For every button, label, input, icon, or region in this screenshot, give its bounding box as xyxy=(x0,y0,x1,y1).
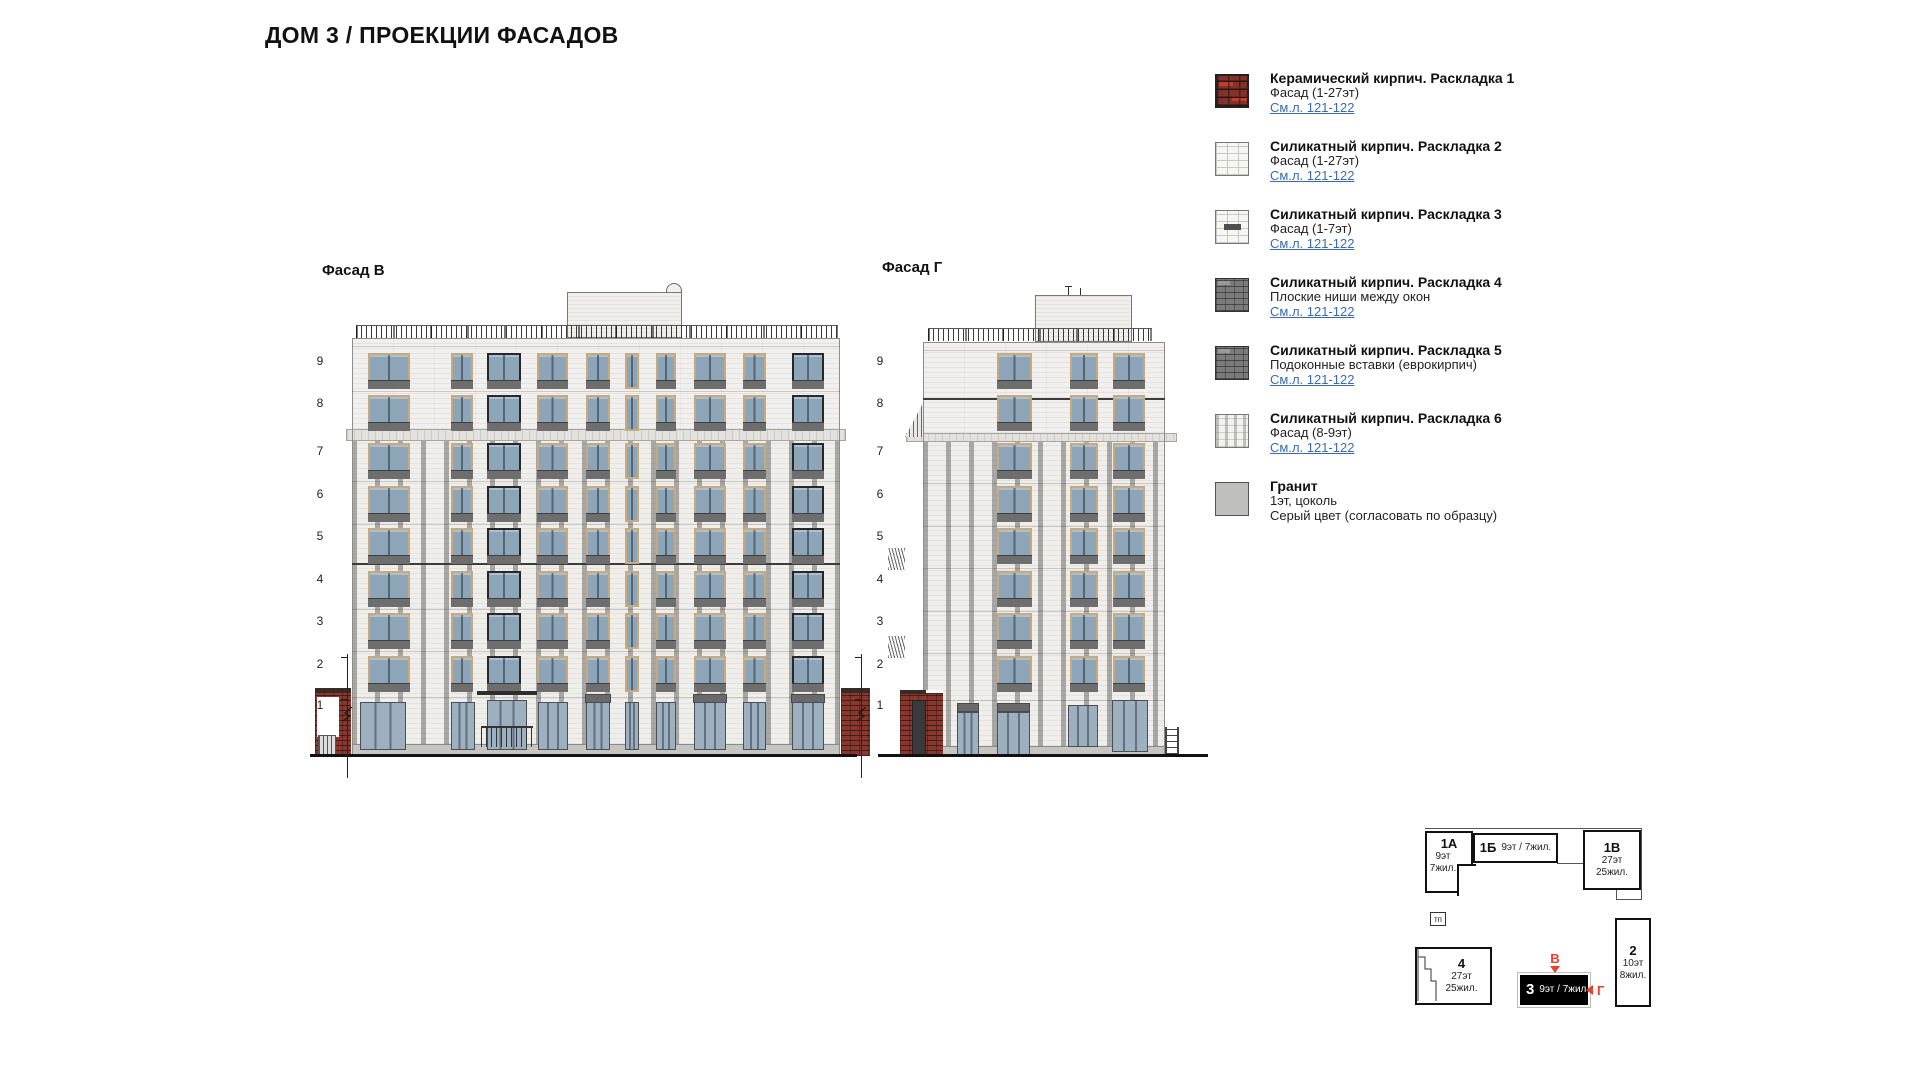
window xyxy=(537,353,568,389)
window-spandrel xyxy=(694,380,726,389)
window-spandrel xyxy=(743,380,766,389)
window xyxy=(625,443,639,479)
window-spandrel xyxy=(997,683,1032,692)
floor-label: 2 xyxy=(870,657,890,671)
floor-line xyxy=(352,609,840,610)
window-spandrel xyxy=(656,555,676,564)
ground-line xyxy=(310,754,857,757)
window-spandrel xyxy=(586,470,610,479)
vent-grate xyxy=(318,735,336,755)
floor-label: 8 xyxy=(310,396,330,410)
window-spandrel xyxy=(368,598,410,607)
legend-item-title: Силикатный кирпич. Раскладка 5 xyxy=(1270,342,1502,358)
window-spandrel xyxy=(451,555,473,564)
window-spandrel xyxy=(997,555,1032,564)
window-spandrel xyxy=(656,598,676,607)
storefront-header xyxy=(957,703,979,712)
window xyxy=(625,656,639,692)
window xyxy=(451,395,473,431)
datum-tick xyxy=(341,699,348,700)
storefront-window xyxy=(451,702,475,750)
window-spandrel xyxy=(792,598,824,607)
window-spandrel xyxy=(451,640,473,649)
window xyxy=(451,656,473,692)
window xyxy=(625,613,639,649)
window-spandrel xyxy=(997,640,1032,649)
legend-item-line: Подоконные вставки (еврокирпич) xyxy=(1270,357,1477,372)
legend-item-title: Силикатный кирпич. Раскладка 6 xyxy=(1270,410,1502,426)
window-spandrel xyxy=(1070,513,1098,522)
window-spandrel xyxy=(656,422,676,431)
window-spandrel xyxy=(997,380,1032,389)
silicate-brick-swatch xyxy=(1215,142,1249,176)
window-spandrel xyxy=(656,513,676,522)
window-spandrel xyxy=(487,598,521,607)
storefront-window xyxy=(538,702,568,750)
window-spandrel xyxy=(537,422,568,431)
legend-item-line: Плоские ниши между окон xyxy=(1270,289,1430,304)
block-1v-line1: 27эт xyxy=(1602,855,1623,867)
block-1a-line1: 9эт xyxy=(1427,851,1459,863)
break-mark xyxy=(342,706,354,722)
window xyxy=(656,395,676,431)
view-marker-g-arrow-icon xyxy=(1586,985,1593,995)
siteplan-block-4: 4 27эт 25жил. xyxy=(1415,947,1492,1005)
facade-g-label: Фасад Г xyxy=(882,259,942,276)
facade-b-label: Фасад В xyxy=(322,262,385,279)
window-spandrel xyxy=(451,598,473,607)
window-spandrel xyxy=(368,640,410,649)
block-4-steps-icon xyxy=(1417,949,1439,1002)
view-marker-g-label: Г xyxy=(1597,983,1604,998)
window-spandrel xyxy=(586,683,610,692)
block-1b-sub: 9эт / 7жил. xyxy=(1501,842,1551,854)
window xyxy=(997,395,1032,431)
window-spandrel xyxy=(792,380,824,389)
window-spandrel xyxy=(1070,555,1098,564)
floor-line xyxy=(923,350,1165,351)
floor-label: 3 xyxy=(870,614,890,628)
side-ramp xyxy=(905,403,923,437)
window xyxy=(625,528,639,564)
block-1v-line2: 25жил. xyxy=(1596,867,1628,879)
window-spandrel xyxy=(368,683,410,692)
window-spandrel xyxy=(656,470,676,479)
window xyxy=(997,353,1032,389)
window-spandrel xyxy=(586,422,610,431)
window-spandrel xyxy=(792,470,824,479)
window-spandrel xyxy=(487,555,521,564)
floor-line xyxy=(352,524,840,525)
floor-label: 2 xyxy=(310,657,330,671)
window-spandrel xyxy=(368,513,410,522)
window-spandrel xyxy=(1070,683,1098,692)
window xyxy=(743,443,766,479)
window xyxy=(997,528,1032,564)
dark-brick-swatch xyxy=(1215,346,1249,380)
window xyxy=(586,613,610,649)
block-2-id: 2 xyxy=(1629,944,1636,958)
window xyxy=(368,528,410,564)
siteplan-block-1b: 1Б 9эт / 7жил. xyxy=(1473,833,1558,863)
floor-label: 5 xyxy=(310,529,330,543)
window-spandrel xyxy=(537,683,568,692)
floor-line xyxy=(352,391,840,392)
floor-label: 7 xyxy=(870,444,890,458)
window xyxy=(792,528,824,564)
window xyxy=(792,486,824,522)
legend-item-line: 1эт, цоколь xyxy=(1270,493,1337,508)
window-spandrel xyxy=(1113,640,1145,649)
window-spandrel xyxy=(743,470,766,479)
window xyxy=(451,353,473,389)
window xyxy=(1070,353,1098,389)
legend-item-title: Гранит xyxy=(1270,478,1318,494)
window xyxy=(743,528,766,564)
window-spandrel xyxy=(656,380,676,389)
window-spandrel xyxy=(1113,683,1145,692)
wall-ladder xyxy=(1165,727,1179,754)
window-spandrel xyxy=(537,598,568,607)
window xyxy=(487,571,521,607)
window-spandrel xyxy=(1113,555,1145,564)
window xyxy=(694,528,726,564)
dark-brick-swatch xyxy=(1215,278,1249,312)
window xyxy=(451,571,473,607)
floor-label: 6 xyxy=(870,487,890,501)
legend-item-title: Силикатный кирпич. Раскладка 3 xyxy=(1270,206,1502,222)
break-mark xyxy=(856,706,868,722)
legend-item-line: Фасад (8-9эт) xyxy=(1270,425,1352,440)
window xyxy=(487,613,521,649)
window xyxy=(694,486,726,522)
window xyxy=(487,528,521,564)
legend-item-link[interactable]: См.л. 121-122 xyxy=(1270,100,1354,115)
window xyxy=(694,571,726,607)
roof-railing xyxy=(356,325,838,338)
view-marker-v-label: В xyxy=(1544,951,1566,966)
datum-tick xyxy=(855,699,862,700)
legend-item-link[interactable]: См.л. 121-122 xyxy=(1270,372,1354,387)
block-1b-id: 1Б xyxy=(1480,841,1497,855)
window-spandrel xyxy=(743,513,766,522)
legend-item-title: Керамический кирпич. Раскладка 1 xyxy=(1270,70,1514,86)
window xyxy=(451,613,473,649)
siteplan-block-tp: тп xyxy=(1430,912,1446,926)
window xyxy=(586,656,610,692)
granite-swatch xyxy=(1215,482,1249,516)
floor-line xyxy=(352,481,840,482)
ceramic-brick-swatch xyxy=(1215,74,1249,108)
window xyxy=(656,528,676,564)
legend-item-title: Силикатный кирпич. Раскладка 4 xyxy=(1270,274,1502,290)
window xyxy=(368,353,410,389)
window-spandrel xyxy=(1113,422,1145,431)
window xyxy=(625,395,639,431)
window xyxy=(743,656,766,692)
legend-item-link[interactable]: См.л. 121-122 xyxy=(1270,304,1354,319)
window xyxy=(368,571,410,607)
window xyxy=(487,353,521,389)
window-spandrel xyxy=(451,422,473,431)
block-1v-id: 1В xyxy=(1604,841,1621,855)
window-spandrel xyxy=(537,555,568,564)
siteplan-block-1v: 1В 27эт 25жил. xyxy=(1583,830,1641,890)
window xyxy=(1113,486,1145,522)
window xyxy=(537,528,568,564)
floor-label: 8 xyxy=(870,396,890,410)
window xyxy=(487,486,521,522)
storefront-window xyxy=(792,702,824,750)
block-1a-notch xyxy=(1457,864,1476,896)
window-spandrel xyxy=(997,598,1032,607)
entrance-fence xyxy=(481,726,533,747)
sketch-mark xyxy=(888,548,905,570)
window-spandrel xyxy=(451,683,473,692)
window-spandrel xyxy=(656,683,676,692)
window-spandrel xyxy=(537,380,568,389)
window xyxy=(1113,656,1145,692)
window xyxy=(451,443,473,479)
window xyxy=(537,486,568,522)
window xyxy=(656,353,676,389)
window-spandrel xyxy=(487,640,521,649)
window xyxy=(1113,443,1145,479)
brick-door xyxy=(912,700,926,756)
window-spandrel xyxy=(997,422,1032,431)
legend-item-line: Фасад (1-27эт) xyxy=(1270,153,1359,168)
floor-line xyxy=(352,346,840,347)
window-spandrel xyxy=(997,470,1032,479)
window-spandrel xyxy=(743,598,766,607)
drawing-sheet: ДОМ 3 / ПРОЕКЦИИ ФАСАДОВ Фасад В Фасад Г… xyxy=(0,0,1920,1080)
block-2-line2: 8жил. xyxy=(1620,970,1646,982)
floor-label: 3 xyxy=(310,614,330,628)
window xyxy=(792,395,824,431)
window-spandrel xyxy=(792,683,824,692)
window-spandrel xyxy=(537,470,568,479)
floor-label: 9 xyxy=(870,354,890,368)
window xyxy=(368,395,410,431)
floor-line xyxy=(923,653,1165,654)
legend-item-link[interactable]: См.л. 121-122 xyxy=(1270,168,1354,183)
window xyxy=(487,443,521,479)
window-spandrel xyxy=(451,513,473,522)
window-spandrel xyxy=(487,380,521,389)
window xyxy=(743,353,766,389)
window-spandrel xyxy=(694,422,726,431)
window xyxy=(368,486,410,522)
window-spandrel xyxy=(743,683,766,692)
window xyxy=(694,443,726,479)
window xyxy=(656,656,676,692)
datum-tick xyxy=(855,657,862,658)
sketch-mark xyxy=(888,636,905,658)
window-spandrel xyxy=(368,555,410,564)
window xyxy=(537,613,568,649)
storefront-window xyxy=(586,702,610,750)
storefront-window xyxy=(656,702,676,750)
window xyxy=(586,486,610,522)
window-spandrel xyxy=(451,470,473,479)
window-spandrel xyxy=(487,422,521,431)
pier-cap xyxy=(315,688,351,693)
window xyxy=(1070,656,1098,692)
window xyxy=(537,395,568,431)
storefront-window xyxy=(743,702,766,750)
block-1a-line2: 7жил. xyxy=(1427,863,1459,875)
roof-railing xyxy=(928,328,1152,341)
siteplan-block-3: 3 9эт / 7жил xyxy=(1520,975,1588,1005)
legend-item-note: Серый цвет (согласовать по образцу) xyxy=(1270,508,1497,523)
window-spandrel xyxy=(694,683,726,692)
window-spandrel xyxy=(586,640,610,649)
window-spandrel xyxy=(1070,470,1098,479)
window-spandrel xyxy=(792,555,824,564)
window xyxy=(537,571,568,607)
block-4-id: 4 xyxy=(1458,957,1465,971)
window xyxy=(487,395,521,431)
floor-line xyxy=(923,526,1165,527)
storefront-header xyxy=(997,703,1030,712)
roof-antenna xyxy=(1080,288,1081,295)
window xyxy=(625,353,639,389)
legend-item-link[interactable]: См.л. 121-122 xyxy=(1270,440,1354,455)
window-spandrel xyxy=(1070,422,1098,431)
window-spandrel xyxy=(368,470,410,479)
window-spandrel xyxy=(997,513,1032,522)
window xyxy=(792,613,824,649)
siteplan-outline xyxy=(1616,899,1642,900)
window-spandrel xyxy=(1113,380,1145,389)
window-spandrel xyxy=(694,513,726,522)
window-spandrel xyxy=(694,640,726,649)
window-spandrel xyxy=(694,555,726,564)
window-spandrel xyxy=(368,422,410,431)
window xyxy=(625,571,639,607)
floor-line xyxy=(923,568,1165,569)
window-spandrel xyxy=(792,513,824,522)
window xyxy=(1113,528,1145,564)
window-spandrel xyxy=(1070,598,1098,607)
window xyxy=(656,571,676,607)
window xyxy=(792,656,824,692)
siteplan-outline xyxy=(1616,890,1617,900)
page-title: ДОМ 3 / ПРОЕКЦИИ ФАСАДОВ xyxy=(265,22,619,49)
entrance-canopy xyxy=(477,691,537,695)
storefront-window xyxy=(1112,700,1148,752)
block-1a-id: 1А xyxy=(1427,837,1471,851)
floor-label: 6 xyxy=(310,487,330,501)
storefront-window xyxy=(625,702,639,750)
storefront-window xyxy=(694,702,726,750)
window-spandrel xyxy=(586,380,610,389)
window-spandrel xyxy=(792,422,824,431)
window xyxy=(1070,571,1098,607)
window xyxy=(656,443,676,479)
window xyxy=(997,656,1032,692)
legend-item-line: Фасад (1-27эт) xyxy=(1270,85,1359,100)
window xyxy=(792,571,824,607)
window-spandrel xyxy=(586,598,610,607)
window xyxy=(368,656,410,692)
floor-line xyxy=(923,611,1165,612)
window-spandrel xyxy=(487,470,521,479)
roof-antenna xyxy=(1068,286,1069,295)
window-spandrel xyxy=(1113,513,1145,522)
window xyxy=(1070,613,1098,649)
window xyxy=(1113,613,1145,649)
block-3-id: 3 xyxy=(1526,983,1534,997)
window-spandrel xyxy=(1113,470,1145,479)
window-spandrel xyxy=(586,555,610,564)
siteplan-outline xyxy=(1557,863,1584,864)
silicate-brick-swatch xyxy=(1215,414,1249,448)
window xyxy=(586,571,610,607)
window-spandrel xyxy=(743,555,766,564)
pier-cap xyxy=(841,688,870,693)
storefront-window xyxy=(360,702,406,750)
window xyxy=(656,486,676,522)
floor-label: 5 xyxy=(870,529,890,543)
window xyxy=(368,443,410,479)
datum-tick xyxy=(341,657,348,658)
window-spandrel xyxy=(694,598,726,607)
window-spandrel xyxy=(1113,598,1145,607)
window xyxy=(694,395,726,431)
window xyxy=(451,528,473,564)
window xyxy=(694,613,726,649)
window xyxy=(743,571,766,607)
window xyxy=(997,443,1032,479)
siteplan-outline xyxy=(1425,828,1642,829)
window xyxy=(997,613,1032,649)
window xyxy=(1070,395,1098,431)
block-4-line2: 25жил. xyxy=(1445,983,1477,995)
floor-label: 4 xyxy=(870,572,890,586)
floor-label: 9 xyxy=(310,354,330,368)
legend-item-link[interactable]: См.л. 121-122 xyxy=(1270,236,1354,251)
window xyxy=(997,571,1032,607)
floor-label: 4 xyxy=(310,572,330,586)
floor-label: 1 xyxy=(310,698,330,712)
window-spandrel xyxy=(586,513,610,522)
window-spandrel xyxy=(451,380,473,389)
floor-line xyxy=(352,651,840,652)
window xyxy=(792,443,824,479)
window xyxy=(368,613,410,649)
window xyxy=(451,486,473,522)
window xyxy=(1113,571,1145,607)
window xyxy=(1113,353,1145,389)
silicate-inset-swatch xyxy=(1215,210,1249,244)
storefront-window xyxy=(997,712,1030,755)
window xyxy=(586,528,610,564)
ground-line xyxy=(878,754,1208,757)
window xyxy=(537,443,568,479)
block-3-sub: 9эт / 7жил xyxy=(1539,984,1586,996)
window xyxy=(743,613,766,649)
window xyxy=(1070,443,1098,479)
window xyxy=(743,395,766,431)
view-marker-v-arrow-icon xyxy=(1550,966,1560,973)
window xyxy=(537,656,568,692)
legend-item-line: Фасад (1-7эт) xyxy=(1270,221,1352,236)
window-spandrel xyxy=(368,380,410,389)
floor-label: 7 xyxy=(310,444,330,458)
window xyxy=(694,656,726,692)
window-spandrel xyxy=(656,640,676,649)
